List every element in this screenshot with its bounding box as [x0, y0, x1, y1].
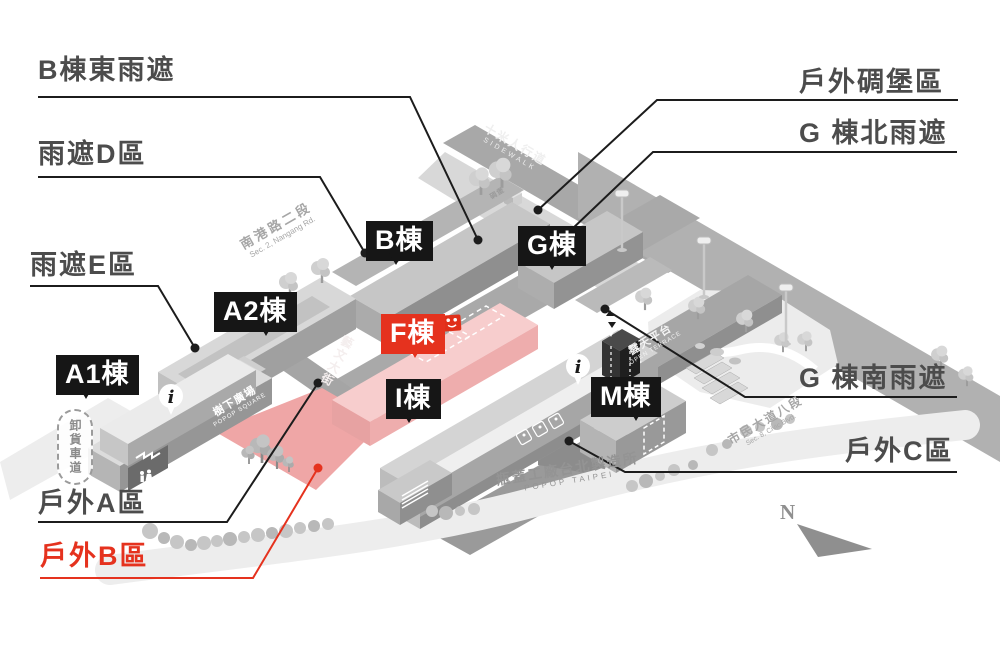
tag-building-f: F棟	[381, 314, 445, 354]
line-rain-e	[30, 286, 195, 348]
compass-arrow	[797, 524, 872, 557]
tag-building-a1: A1棟	[56, 355, 139, 395]
tag-building-i: I棟	[386, 379, 441, 419]
callout-g-south-canopy: G 棟南雨遮	[799, 365, 948, 392]
svg-text:i: i	[575, 357, 582, 378]
tag-building-g: G棟	[518, 226, 586, 266]
popop-logo-icon	[442, 314, 461, 331]
tag-building-a2: A2棟	[214, 292, 297, 332]
unloading-lane-badge: 卸貨車道	[57, 409, 93, 485]
compass-north-label: N	[780, 500, 795, 525]
callout-outdoor-b: 戶外B區	[40, 543, 149, 570]
callout-b-east-canopy: B棟東雨遮	[38, 57, 176, 84]
tag-building-m: M棟	[591, 377, 661, 417]
callout-g-north-canopy: G 棟北雨遮	[799, 120, 948, 147]
dot-out-b	[314, 464, 323, 473]
callout-outdoor-bunker-zone: 戶外碉堡區	[799, 69, 944, 96]
map-graphics: i i	[0, 0, 1000, 653]
svg-text:i: i	[168, 387, 175, 408]
unloading-lane-label: 卸貨車道	[69, 419, 81, 475]
callout-outdoor-a: 戶外A區	[38, 490, 147, 517]
callout-outdoor-c: 戶外C區	[845, 438, 954, 465]
callout-canopy-e: 雨遮E區	[30, 252, 137, 279]
callout-canopy-d: 雨遮D區	[38, 141, 147, 168]
campus-map: i i	[0, 0, 1000, 653]
tag-building-b: B棟	[366, 221, 433, 261]
